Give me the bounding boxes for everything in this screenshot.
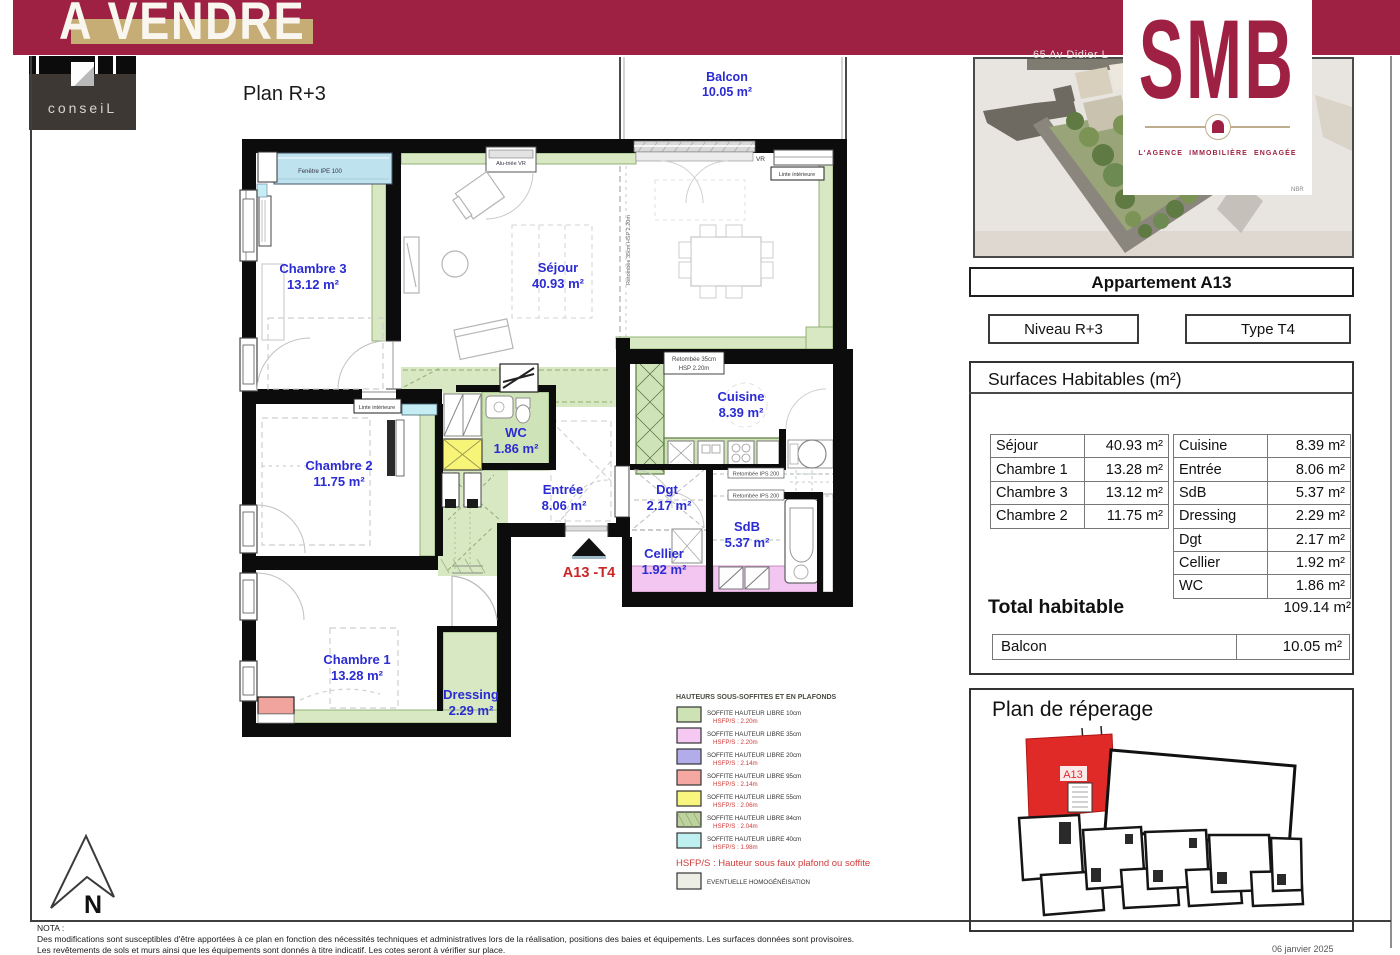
svg-text:HSFP/S : 2.06m: HSFP/S : 2.06m xyxy=(713,802,758,809)
svg-text:40.93 m²: 40.93 m² xyxy=(532,276,585,291)
svg-text:Fenêtre IPE 100: Fenêtre IPE 100 xyxy=(298,169,342,175)
svg-text:HSFP/S : 2.20m: HSFP/S : 2.20m xyxy=(713,718,758,725)
svg-text:VR: VR xyxy=(756,156,765,163)
svg-text:Retombée IPS 200: Retombée IPS 200 xyxy=(733,494,779,500)
svg-text:HSFP/S : 1.98m: HSFP/S : 1.98m xyxy=(713,844,758,851)
svg-text:N: N xyxy=(84,891,102,919)
svg-text:WC: WC xyxy=(505,425,527,440)
svg-text:1.92 m²: 1.92 m² xyxy=(642,562,687,577)
svg-text:HSFP/S : 2.14m: HSFP/S : 2.14m xyxy=(713,760,758,767)
svg-text:Linte intérieure: Linte intérieure xyxy=(359,405,395,411)
svg-text:Dressing: Dressing xyxy=(443,687,499,702)
svg-text:HAUTEURS SOUS-SOFFITES ET EN P: HAUTEURS SOUS-SOFFITES ET EN PLAFONDS xyxy=(676,694,837,701)
svg-text:Séjour: Séjour xyxy=(538,260,578,275)
svg-text:SOFFITE HAUTEUR LIBRE 95cm: SOFFITE HAUTEUR LIBRE 95cm xyxy=(707,773,801,780)
svg-text:Retombée 35cm: Retombée 35cm xyxy=(672,357,716,363)
svg-text:1.86 m²: 1.86 m² xyxy=(494,441,539,456)
svg-text:Balcon: Balcon xyxy=(706,70,748,84)
svg-text:SOFFITE HAUTEUR LIBRE 40cm: SOFFITE HAUTEUR LIBRE 40cm xyxy=(707,836,801,843)
svg-text:A13 -T4: A13 -T4 xyxy=(563,565,615,581)
svg-text:Chambre 3: Chambre 3 xyxy=(279,261,346,276)
svg-text:11.75 m²: 11.75 m² xyxy=(313,474,365,489)
svg-text:HSFP/S : 2.04m: HSFP/S : 2.04m xyxy=(713,823,758,830)
svg-text:HSP 2.20m: HSP 2.20m xyxy=(679,366,710,372)
svg-text:10.05 m²: 10.05 m² xyxy=(702,85,752,99)
svg-text:Retombée 35cm HSP 2.20m: Retombée 35cm HSP 2.20m xyxy=(626,215,632,285)
svg-text:SdB: SdB xyxy=(734,519,760,534)
svg-text:SOFFITE HAUTEUR LIBRE 35cm: SOFFITE HAUTEUR LIBRE 35cm xyxy=(707,731,801,738)
svg-text:Alu-triée VR: Alu-triée VR xyxy=(496,161,526,167)
svg-text:8.06 m²: 8.06 m² xyxy=(542,498,587,513)
svg-text:EVENTUELLE HOMOGÉNÉISATION: EVENTUELLE HOMOGÉNÉISATION xyxy=(707,879,810,886)
svg-text:SOFFITE HAUTEUR LIBRE 55cm: SOFFITE HAUTEUR LIBRE 55cm xyxy=(707,794,801,801)
svg-text:13.28 m²: 13.28 m² xyxy=(331,668,384,683)
svg-text:HSFP/S : 2.14m: HSFP/S : 2.14m xyxy=(713,781,758,788)
svg-text:Retombée IPS 200: Retombée IPS 200 xyxy=(733,472,779,478)
svg-text:Linte intérieure: Linte intérieure xyxy=(779,172,815,178)
svg-text:SOFFITE HAUTEUR LIBRE 10cm: SOFFITE HAUTEUR LIBRE 10cm xyxy=(707,710,801,717)
svg-text:HSFP/S : 2.20m: HSFP/S : 2.20m xyxy=(713,739,758,746)
svg-text:A13: A13 xyxy=(1063,769,1083,781)
svg-text:Dgt: Dgt xyxy=(656,482,678,497)
svg-text:HSFP/S : Hauteur sous faux pla: HSFP/S : Hauteur sous faux plafond ou so… xyxy=(676,858,870,869)
svg-text:2.17 m²: 2.17 m² xyxy=(647,498,692,513)
svg-text:Cellier: Cellier xyxy=(644,546,684,561)
svg-text:SOFFITE HAUTEUR LIBRE 20cm: SOFFITE HAUTEUR LIBRE 20cm xyxy=(707,752,801,759)
svg-text:Cuisine: Cuisine xyxy=(718,389,765,404)
svg-text:13.12 m²: 13.12 m² xyxy=(287,277,340,292)
svg-text:Chambre 2: Chambre 2 xyxy=(305,458,372,473)
svg-text:5.37 m²: 5.37 m² xyxy=(725,535,770,550)
svg-text:2.29 m²: 2.29 m² xyxy=(449,703,494,718)
svg-text:8.39 m²: 8.39 m² xyxy=(719,405,764,420)
svg-text:SOFFITE HAUTEUR LIBRE 84cm: SOFFITE HAUTEUR LIBRE 84cm xyxy=(707,815,801,822)
svg-text:Chambre 1: Chambre 1 xyxy=(323,652,390,667)
svg-text:Entrée: Entrée xyxy=(543,482,583,497)
